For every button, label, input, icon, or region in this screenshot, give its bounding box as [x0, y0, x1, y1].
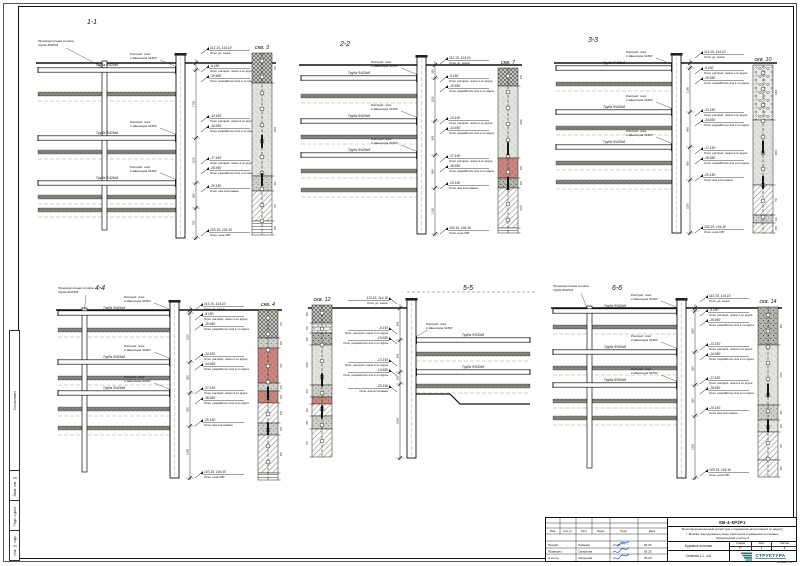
sig-name: Смирнова — [578, 556, 592, 560]
elevation-mark-icon — [445, 182, 448, 185]
dimension-value: 900 — [686, 127, 690, 132]
elevation-caption: Отм. распред. пояса 3-го яруса — [709, 381, 753, 385]
dimension-value: 300 — [396, 375, 400, 380]
section-title: 3-3 — [588, 37, 598, 44]
strut-pipe — [38, 181, 176, 185]
belt-label: 2 Швеллера №30У — [129, 169, 158, 173]
intermediate-post — [102, 61, 107, 230]
sig-date: 05.25 — [644, 556, 652, 560]
signature-grid: Изм. Кол.уч. Лист №док. Подп. Дата Разра… — [546, 518, 667, 561]
elevation-value: -14.650 — [210, 124, 221, 128]
sig-role: Разраб. — [548, 543, 559, 547]
belt-label: 2 Швеллера №30У — [630, 338, 659, 342]
elevation-caption: Отм. дна котлована — [210, 189, 239, 193]
sample-point — [266, 380, 270, 384]
pipe-label: Труба Ф530х8 — [604, 304, 626, 308]
section-2-2: 2-2Труба Ф426х8Распред. пояс2 Швеллера №… — [295, 38, 530, 250]
belt-label: 2 Швеллера №30У — [630, 297, 659, 301]
elevation-value: -10.650 — [210, 74, 221, 78]
title-block-signatures: Изм. Кол.уч. Лист №док. Подп. Дата Разра… — [546, 518, 668, 561]
borehole-label: скв. 14 — [759, 299, 776, 305]
belt-label: 2 Швеллера №30У — [630, 371, 659, 375]
sample-point — [260, 123, 264, 127]
post-label: Труба Ф325х8 — [553, 288, 574, 292]
soil-band — [553, 399, 677, 403]
section-title: 2-2 — [339, 41, 350, 48]
sample-point — [260, 107, 264, 111]
strut-pipe — [38, 136, 176, 140]
layer-depth-value: 750 — [775, 197, 778, 202]
dimension-value: 850 — [686, 161, 690, 166]
strut-pipe — [301, 76, 417, 80]
elevation-value: -18.650 — [709, 386, 720, 390]
dimension-value: 650 — [192, 193, 196, 198]
soil-band — [556, 126, 672, 130]
elevation-value: -13.150 — [449, 116, 460, 120]
sample-point — [761, 87, 765, 91]
elevation-mark-icon — [705, 295, 708, 298]
elevation-mark-icon — [206, 47, 209, 50]
sample-point — [506, 74, 510, 78]
elevation-mark-icon — [700, 77, 703, 80]
elevation-caption: Отм. разработки для 1-го яруса — [343, 341, 388, 345]
sample-point — [266, 364, 270, 368]
sample-point — [266, 332, 270, 336]
pipe-label: Труба Ф426х8 — [103, 355, 125, 359]
layer-depth-value: 900 — [280, 363, 283, 368]
soil-band — [416, 352, 530, 356]
soil-band — [556, 82, 672, 86]
elevation-mark-icon — [389, 369, 392, 372]
sample-point — [266, 316, 270, 320]
elevation-mark-icon — [705, 469, 708, 472]
layer-depth-value: 250 — [280, 340, 283, 345]
pipe-label: Труба Ф530х8 — [462, 365, 484, 369]
layer-depth-value: 1800 — [520, 119, 523, 125]
elevation-mark-icon — [705, 309, 708, 312]
belt-label: 2 Швеллера №30У — [129, 124, 158, 128]
wall-cap — [169, 300, 181, 303]
elevation-value: -9.150 — [204, 312, 214, 316]
elevation-caption: Отм. разработки для 1-го яруса — [210, 79, 255, 83]
structura-logo-icon — [741, 552, 753, 561]
elevation-caption: Отм. разработки для 2-го яруса — [210, 129, 255, 133]
elevation-caption: Отм. разработки для 1-го яруса — [704, 81, 749, 85]
elevation-caption: Отм. низа СВГ — [449, 231, 470, 235]
layer-depth-value: 1650 — [775, 149, 778, 155]
title-block: Изм. Кол.уч. Лист №док. Подп. Дата Разра… — [545, 517, 797, 562]
sig-date: 05.25 — [644, 543, 652, 547]
sig-col-izm: Изм. — [550, 529, 556, 533]
elevation-value: -20.150 — [704, 173, 715, 177]
strut-pipe — [416, 338, 530, 342]
sig-role: Проверил — [548, 550, 562, 554]
sample-point — [761, 135, 765, 139]
intermediate-post — [82, 308, 87, 472]
section-title: 6-6 — [612, 285, 622, 292]
sample-point — [766, 361, 770, 365]
elevation-value: -13.150 — [704, 108, 715, 112]
dimension-value: 1850 — [396, 418, 400, 424]
strut-pipe — [38, 68, 176, 72]
sig-name: Смирнова — [578, 550, 592, 554]
elevation-caption: Отм. распред. пояса 3-го яруса — [210, 161, 254, 165]
soil-band — [556, 180, 672, 184]
sample-point — [320, 423, 324, 427]
elevation-value: -20.150 — [210, 184, 221, 188]
elevation-caption: Отм. разработки для 2-го яруса — [343, 373, 388, 377]
elevation-caption: Отм. распред. пояса 2-го яруса — [204, 357, 248, 361]
dimension-value: 800 — [186, 375, 190, 380]
dimension-value: 850 — [186, 407, 190, 412]
sample-point — [506, 106, 510, 110]
elevation-value: -10.650 — [709, 318, 720, 322]
sig-col-ndok: №док. — [597, 529, 605, 533]
elevation-value: 103.15, 104.10 — [449, 226, 471, 230]
dimension-value: 1550 — [691, 444, 695, 450]
dimension-value: 1300 — [186, 449, 190, 455]
elevation-mark-icon — [700, 67, 703, 70]
elevation-mark-icon — [445, 165, 448, 168]
soil-band — [301, 188, 417, 192]
elevation-value: -10.650 — [704, 76, 715, 80]
elevation-value: 113.15, 114.10 — [709, 294, 731, 298]
layer-depth-value: 750 — [274, 203, 277, 208]
elevation-value: -13.150 — [210, 114, 221, 118]
sample-point — [320, 439, 324, 443]
elevation-caption: Отм. распред. пояса 2-го яруса — [345, 363, 389, 367]
pipe-label: Труба Ф426х8 — [348, 148, 370, 152]
elevation-caption: Отм. разработки для 1-го яруса — [204, 327, 249, 331]
soil-band — [553, 366, 677, 370]
section-6-6: 6-6Промежуточная стойкаТруба Ф325х8Труба… — [545, 282, 795, 494]
layer-depth-value: 700 — [280, 321, 283, 326]
dimension-value: 1100 — [431, 96, 435, 102]
belt-label: 2 Швеллера №30У — [129, 56, 158, 60]
pipe-label: Труба Ф426х8 — [103, 306, 125, 310]
title-block-info: КВ-4-КР2Р1 Многофункциональный жилой дом… — [668, 518, 796, 561]
elevation-value: 113.15, 114.10 — [204, 302, 226, 306]
layer-depth-value: 1500 — [780, 372, 783, 378]
elevation-mark-icon — [445, 127, 448, 130]
sample-point — [761, 199, 765, 203]
soil-band — [416, 384, 530, 388]
borehole-label: скв. 3 — [255, 45, 269, 51]
elevation-caption: Отм. распред. пояса 2-го яруса — [709, 347, 753, 351]
elevation-caption: Отм. распред. пояса 1-го яруса — [204, 317, 248, 321]
soil-band — [556, 161, 672, 165]
elevation-caption: Отм. ур. земли — [204, 307, 225, 311]
pipe-label: Труба Ф426х8 — [603, 140, 625, 144]
elevation-value: -9.150 — [709, 308, 719, 312]
elevation-mark-icon — [206, 125, 209, 128]
elevation-caption: Отм. распред. пояса 1-го яруса — [449, 79, 493, 83]
elevation-mark-icon — [700, 157, 703, 160]
sample-point — [320, 343, 324, 347]
elevation-value: -20.150 — [377, 384, 388, 388]
elevation-mark-icon — [206, 167, 209, 170]
drawing-sheet: Согласовано Взам. инв. № Подп. и дата Ин… — [0, 0, 800, 565]
layer-depth-value: 250 — [306, 325, 309, 330]
elevation-mark-icon — [445, 75, 448, 78]
elevation-caption: Отм. дна котлована — [449, 186, 478, 190]
elevation-value: -10.650 — [204, 322, 215, 326]
elevation-caption: Отм. дна котлована — [359, 389, 388, 393]
sample-point — [766, 441, 770, 445]
sig-col-podp: Подп. — [620, 529, 628, 533]
sample-point — [266, 444, 270, 448]
dimension-value: 1250 — [186, 334, 190, 340]
elevation-value: -17.150 — [704, 146, 715, 150]
layer-depth-value: 300 — [306, 407, 309, 412]
elevation-mark-icon — [445, 227, 448, 230]
elevation-value: -9.150 — [379, 326, 389, 330]
elevation-value: -17.150 — [709, 376, 720, 380]
elevation-caption: Отм. распред. пояса 3-го яруса — [704, 151, 748, 155]
dimension-value: 1350 — [686, 203, 690, 209]
belt-label: 2 Швеллера №30У — [370, 141, 399, 145]
soil-band — [301, 94, 417, 98]
elevation-mark-icon — [445, 85, 448, 88]
layer-depth-value: 450 — [306, 311, 309, 316]
soil-band — [553, 416, 677, 420]
sample-point — [320, 391, 324, 395]
elevation-caption: Отм. ур. земли — [367, 301, 388, 305]
layer-depth-value: 250 — [520, 180, 523, 185]
layer-depth-value: 750 — [274, 65, 277, 70]
layer-depth-value: 250 — [775, 225, 778, 230]
elevation-mark-icon — [206, 115, 209, 118]
pipe-label: Труба Ф426х8 — [603, 105, 625, 109]
soil-band — [301, 169, 417, 173]
elevation-caption: Отм. ур. земли — [704, 55, 725, 59]
section-title: 4-4 — [95, 285, 105, 292]
borehole-label: скв. 12 — [313, 297, 330, 303]
layer-depth-value: 300 — [780, 423, 783, 428]
elevation-mark-icon — [445, 57, 448, 60]
layer-depth-value: 200 — [775, 216, 778, 221]
section-5-5: 5-5Труба Ф530х8Распред. пояс2 Швеллера №… — [300, 282, 540, 490]
pipe-label: Труба Ф426х8 — [96, 176, 118, 180]
elevation-value: -13.150 — [709, 342, 720, 346]
elevation-value: 103.15, 104.10 — [210, 228, 232, 232]
elevation-value: -9.150 — [210, 64, 220, 68]
sample-point — [266, 348, 270, 352]
sample-point — [766, 457, 770, 461]
soil-band — [58, 328, 170, 332]
sig-col-data: Дата — [649, 529, 656, 533]
strut-pipe — [301, 153, 417, 157]
layer-depth-value: 1000 — [520, 205, 523, 211]
elevation-caption: Отм. разработки для 1-го яруса — [449, 89, 494, 93]
layer-depth-value: 700 — [780, 443, 783, 448]
elevation-value: 113.15, 114.10 — [210, 46, 232, 50]
wall-cap — [175, 53, 187, 56]
strut-pipe — [553, 309, 677, 313]
section-3-3: 3-3Труба Ф426х8Распред. пояс2 Швеллера №… — [550, 34, 795, 246]
elevation-mark-icon — [389, 385, 392, 388]
sample-point — [761, 167, 765, 171]
sample-point — [266, 460, 270, 464]
elevation-mark-icon — [200, 397, 203, 400]
pipe-label: Труба Ф530х8 — [604, 378, 626, 382]
format-note: Формат А1 — [777, 560, 792, 564]
sample-point — [320, 359, 324, 363]
borehole-label: скв. 4 — [261, 302, 275, 308]
dimension-value: 800 — [691, 398, 695, 403]
elevation-mark-icon — [705, 319, 708, 322]
elevation-value: -18.650 — [449, 164, 460, 168]
elevation-caption: Отм. низа СВГ — [204, 475, 225, 479]
belt-label: 2 Швеллера №30У — [123, 299, 152, 303]
dimension-value: 850 — [431, 169, 435, 174]
elevation-value: 113.15, 114.10 — [449, 56, 471, 60]
elevation-value: -10.650 — [377, 336, 388, 340]
pipe-label: Труба Ф530х8 — [462, 333, 484, 337]
elevation-mark-icon — [200, 313, 203, 316]
elevation-value: -9.150 — [449, 74, 459, 78]
elevation-value: -17.150 — [210, 156, 221, 160]
sample-point — [506, 170, 510, 174]
elevation-value: -13.150 — [204, 352, 215, 356]
sample-point — [506, 218, 510, 222]
elevation-mark-icon — [700, 119, 703, 122]
elevation-caption: Отм. распред. пояса 1-го яруса — [345, 331, 389, 335]
sig-col-list: Лист — [581, 529, 588, 533]
elevation-mark-icon — [705, 377, 708, 380]
section-4-4: 4-4Промежуточная стойкаТруба Ф325х8Труба… — [50, 282, 298, 496]
elevation-caption: Отм. распред. пояса 1-го яруса — [709, 313, 753, 317]
elevation-caption: Отм. разработки для 3-го яруса — [704, 161, 749, 165]
sample-point — [260, 219, 264, 223]
layer-depth-value: 700 — [306, 440, 309, 445]
dimension-value: 750 — [192, 220, 196, 225]
layer-depth-value: 350 — [306, 420, 309, 425]
elevation-caption: Отм. разработки для 3-го яруса — [709, 391, 754, 395]
pipe-label: Труба Ф426х8 — [603, 61, 625, 65]
strut-pipe — [556, 66, 672, 70]
sample-point — [320, 311, 324, 315]
dimension-value: 850 — [431, 135, 435, 140]
section-1-1: 1-1Промежуточная стойкаТруба Ф325х8Труба… — [30, 16, 288, 254]
sample-point — [260, 187, 264, 191]
pipe-label: Труба Ф426х8 — [96, 131, 118, 135]
elevation-mark-icon — [389, 297, 392, 300]
elevation-mark-icon — [700, 51, 703, 54]
layer-depth-value: 950 — [780, 323, 783, 328]
elevation-mark-icon — [705, 353, 708, 356]
elevation-caption: Отм. разработки для 3-го яруса — [210, 171, 255, 175]
org-name: СТРУКТУРА — [755, 553, 785, 560]
dimension-value: 800 — [396, 321, 400, 326]
elevation-caption: Отм. ур. земли — [210, 51, 231, 55]
elevation-mark-icon — [206, 185, 209, 188]
elevation-caption: Отм. разработки для 2-го яруса — [709, 357, 754, 361]
strut-pipe — [553, 383, 677, 387]
belt-label: 2 Швеллера №30У — [123, 379, 152, 383]
dimension-value: 1150 — [192, 157, 196, 163]
elevation-caption: Отм. дна котлована — [709, 411, 738, 415]
strut-pipe — [301, 119, 417, 123]
elevation-mark-icon — [200, 363, 203, 366]
post-label: Труба Ф325х8 — [38, 43, 59, 47]
document-code: КВ-4-КР2Р1 — [668, 518, 797, 527]
elevation-caption: Отм. дна котлована — [204, 423, 233, 427]
layer-depth-value: 1400 — [775, 89, 778, 95]
elevation-caption: Отм. низа СВГ — [709, 473, 730, 477]
elevation-caption: Отм. разработки для 2-го яруса — [449, 131, 494, 135]
elevation-caption: Отм. распред. пояса 1-го яруса — [704, 71, 748, 75]
sample-point — [766, 329, 770, 333]
soil-band — [553, 325, 677, 329]
sample-point — [320, 327, 324, 331]
elevation-caption: Отм. распред. пояса 1-го яруса — [210, 69, 254, 73]
sig-date: 05.25 — [644, 550, 652, 554]
sample-point — [766, 409, 770, 413]
layer-depth-value: 350 — [274, 225, 277, 230]
dimension-value: 1100 — [686, 87, 690, 93]
sample-point — [506, 90, 510, 94]
project-line: Юридический участок 3 — [716, 536, 749, 540]
belt-label: 2 Швеллера №30У — [625, 98, 654, 102]
elevation-mark-icon — [200, 471, 203, 474]
sample-point — [260, 75, 264, 79]
layer-depth-value: 500 — [280, 410, 283, 415]
elevation-caption: Отм. ур. земли — [449, 61, 470, 65]
drawing-title: Буровые колонки — [668, 542, 730, 551]
elevation-mark-icon — [700, 109, 703, 112]
elevation-value: -14.650 — [449, 126, 460, 130]
sample-point — [761, 71, 765, 75]
layer-depth-value: 2350 — [274, 126, 277, 132]
strut-pipe — [58, 311, 170, 315]
dimension-value: 800 — [396, 353, 400, 358]
elevation-mark-icon — [700, 226, 703, 229]
dimension-value: 1050 — [691, 328, 695, 334]
elevation-caption: Отм. разработки для 2-го яруса — [204, 367, 249, 371]
elevation-caption: Отм. разработки для 2-го яруса — [704, 123, 749, 127]
pipe-label: Труба Ф530х8 — [604, 345, 626, 349]
elevation-mark-icon — [200, 419, 203, 422]
elevation-value: -14.650 — [204, 362, 215, 366]
elevation-mark-icon — [200, 387, 203, 390]
layer-depth-value: 300 — [306, 336, 309, 341]
elevation-caption: Отм. ур. земли — [709, 299, 730, 303]
wall-cap — [671, 53, 683, 56]
dimension-value: 1150 — [431, 208, 435, 214]
belt-label: 2 Швеллера №30У — [370, 64, 399, 68]
sample-point — [506, 138, 510, 142]
layer-depth-value: 450 — [780, 466, 783, 471]
borehole-label: скв. 7 — [501, 60, 516, 66]
elevation-value: -18.650 — [204, 396, 215, 400]
elevation-caption: Отм. распред. пояса 2-го яруса — [449, 121, 493, 125]
sig-col-koluch: Кол.уч. — [563, 529, 572, 533]
pipe-label: Труба Ф426х8 — [348, 71, 370, 75]
wall-cap — [406, 298, 418, 301]
elevation-value: -20.150 — [204, 418, 215, 422]
elevation-value: -20.150 — [709, 406, 720, 410]
layer-depth-value: 950 — [280, 451, 283, 456]
sig-name: Лобанов — [578, 543, 590, 547]
sample-point — [761, 119, 765, 123]
elevation-caption: Отм. распред. пояса 3-го яруса — [449, 159, 493, 163]
soil-band — [58, 407, 170, 411]
elevation-mark-icon — [389, 359, 392, 362]
sample-point — [260, 59, 264, 63]
belt-label: 2 Швеллера №30У — [425, 326, 454, 330]
sample-point — [266, 412, 270, 416]
